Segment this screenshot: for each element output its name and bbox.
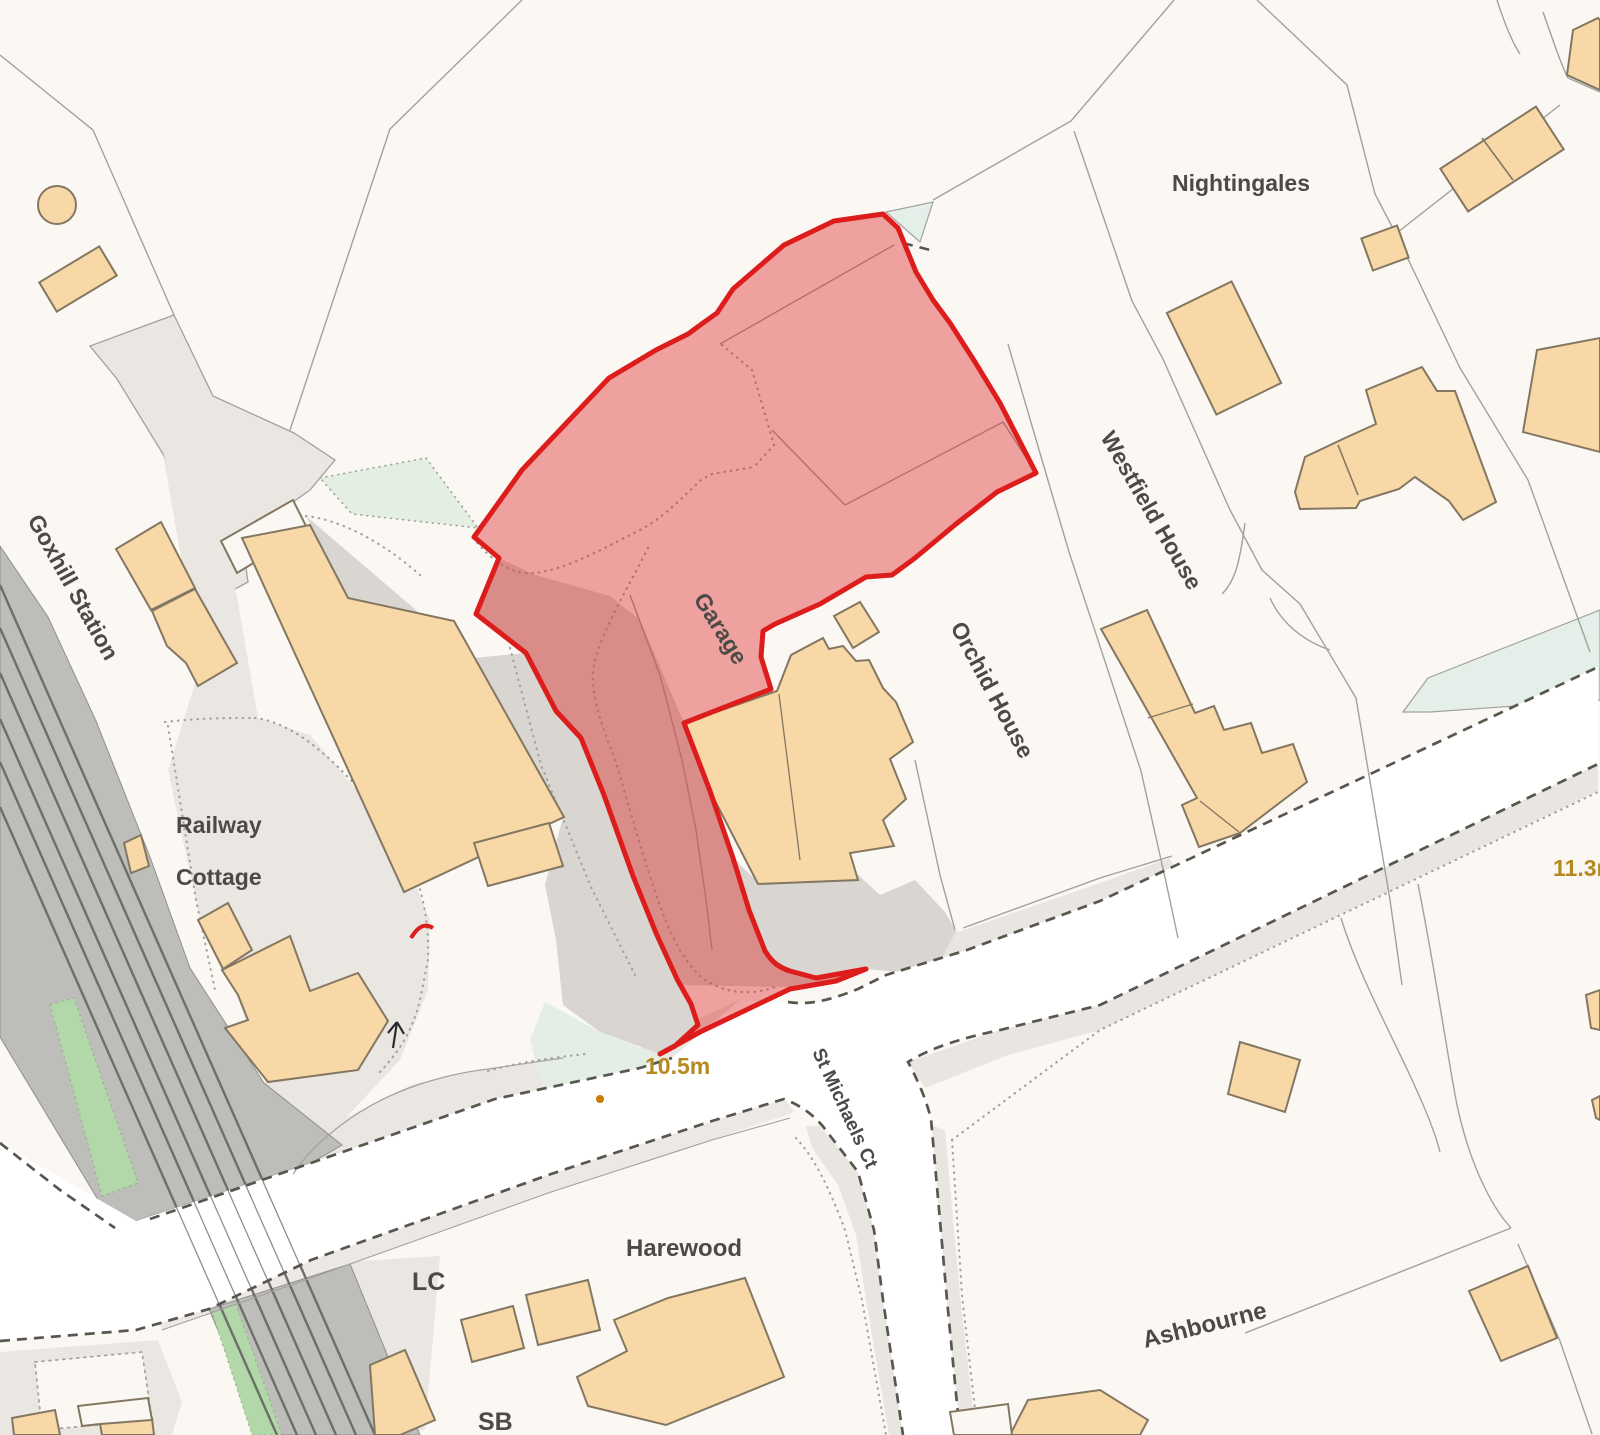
svg-text:10.5m: 10.5m	[645, 1053, 710, 1079]
svg-text:SB: SB	[478, 1408, 513, 1435]
svg-text:Railway: Railway	[176, 812, 262, 838]
svg-text:Cottage: Cottage	[176, 864, 262, 890]
svg-text:11.3m: 11.3m	[1553, 855, 1600, 881]
svg-text:Nightingales: Nightingales	[1172, 170, 1310, 196]
svg-text:LC: LC	[412, 1268, 445, 1296]
svg-text:Harewood: Harewood	[626, 1235, 742, 1262]
